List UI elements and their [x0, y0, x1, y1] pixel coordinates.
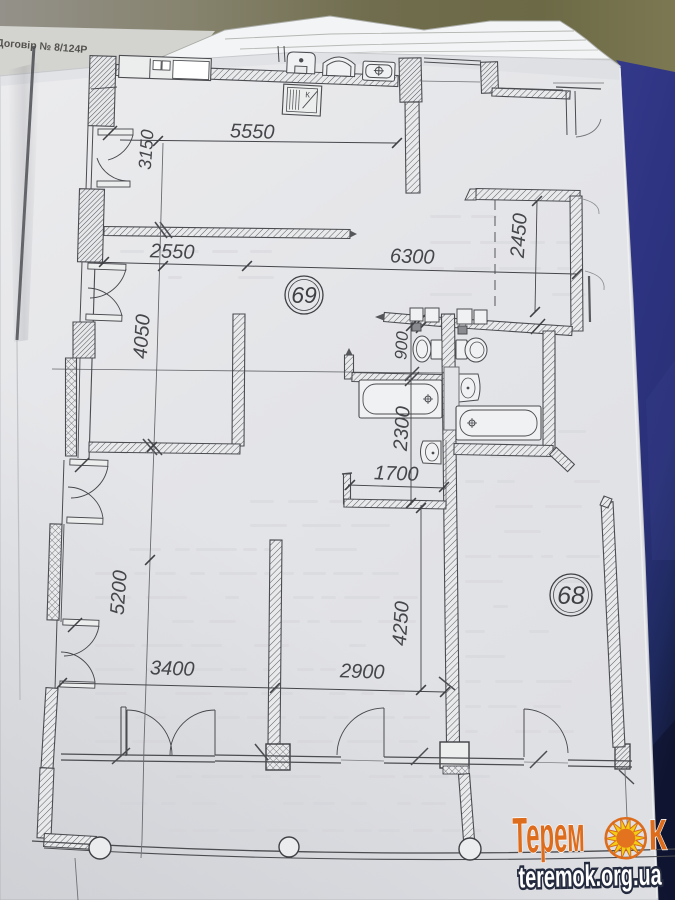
svg-text:2550: 2550 — [149, 240, 195, 264]
svg-text:69: 69 — [291, 282, 317, 308]
svg-text:teremok.org.ua: teremok.org.ua — [518, 859, 662, 895]
svg-text:3400: 3400 — [150, 657, 195, 681]
svg-text:К: К — [305, 90, 310, 99]
svg-text:К: К — [648, 811, 668, 859]
svg-text:4050: 4050 — [130, 314, 155, 360]
svg-text:5200: 5200 — [107, 570, 132, 616]
svg-text:3150: 3150 — [135, 129, 158, 170]
svg-text:2300: 2300 — [390, 406, 415, 453]
svg-text:Терем: Терем — [512, 806, 585, 863]
svg-text:2450: 2450 — [507, 213, 532, 260]
svg-text:5550: 5550 — [230, 120, 275, 144]
svg-text:900: 900 — [391, 330, 412, 360]
svg-text:2900: 2900 — [339, 660, 385, 684]
svg-text:6300: 6300 — [390, 245, 435, 269]
svg-text:1700: 1700 — [374, 462, 419, 486]
svg-text:4250: 4250 — [389, 601, 414, 647]
svg-text:68: 68 — [557, 582, 585, 610]
